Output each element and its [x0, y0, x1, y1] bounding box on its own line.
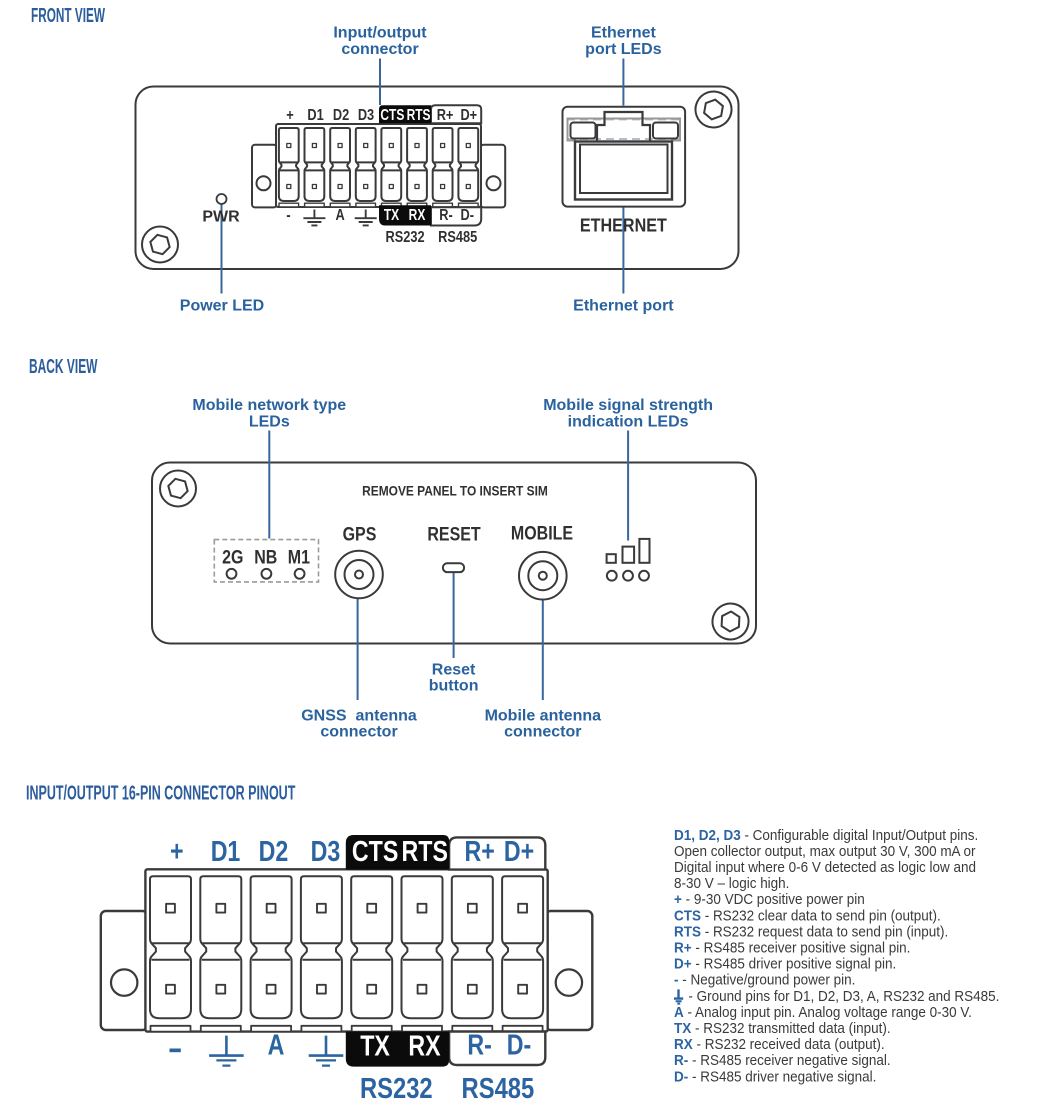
svg-text:R-: R-: [467, 1028, 491, 1061]
svg-text:+ - 9-30 VDC positive power pi: + - 9-30 VDC positive power pin: [674, 892, 865, 909]
svg-text:R+: R+: [464, 834, 494, 867]
svg-text:D+: D+: [460, 107, 477, 125]
svg-text:RS232: RS232: [360, 1072, 433, 1105]
svg-text:R- - RS485 receiver negative s: R- - RS485 receiver negative signal.: [674, 1053, 891, 1070]
svg-text:D2: D2: [259, 834, 289, 867]
svg-text:-: -: [286, 207, 290, 225]
svg-text:LEDs: LEDs: [249, 414, 290, 431]
svg-text:button: button: [429, 678, 479, 695]
svg-text:RX: RX: [409, 205, 426, 223]
svg-text:RTS: RTS: [402, 834, 448, 867]
svg-text:TX: TX: [384, 205, 400, 223]
svg-text:ETHERNET: ETHERNET: [580, 214, 667, 235]
svg-text:R+: R+: [437, 107, 454, 125]
svg-text:D- - RS485 driver negative sig: D- - RS485 driver negative signal.: [674, 1069, 876, 1086]
svg-text:NB: NB: [254, 546, 277, 568]
svg-text:A - Analog input pin. Analog v: A - Analog input pin. Analog voltage ran…: [674, 1004, 972, 1021]
svg-text:GPS: GPS: [343, 523, 377, 545]
svg-text:RX: RX: [408, 1029, 441, 1062]
svg-text:+: +: [286, 107, 293, 125]
svg-text:D-: D-: [461, 207, 475, 225]
svg-text:MOBILE: MOBILE: [511, 522, 573, 544]
svg-text:RS485: RS485: [462, 1072, 535, 1105]
svg-text:PWR: PWR: [202, 209, 240, 226]
svg-text:Reset: Reset: [432, 662, 476, 679]
svg-text:M1: M1: [288, 546, 310, 568]
svg-text:D2: D2: [333, 107, 349, 125]
svg-text:D+ - RS485 driver positive sig: D+ - RS485 driver positive signal pin.: [674, 956, 896, 973]
svg-text:CTS: CTS: [352, 834, 398, 867]
svg-text:D3: D3: [358, 107, 374, 125]
svg-text:D1: D1: [211, 834, 241, 867]
svg-text:Mobile antenna: Mobile antenna: [485, 707, 602, 724]
svg-text:R+ - RS485 receiver positive s: R+ - RS485 receiver positive signal pin.: [674, 940, 910, 957]
svg-text:GNSS antenna: GNSS antenna: [301, 707, 417, 724]
svg-text:connector: connector: [341, 41, 418, 58]
svg-text:Digital input where 0-6 V dete: Digital input where 0-6 V detected as lo…: [674, 859, 976, 876]
svg-text:CTS - RS232 clear data to send: CTS - RS232 clear data to send pin (outp…: [674, 908, 941, 925]
svg-text:8-30 V – logic high.: 8-30 V – logic high.: [674, 875, 789, 892]
svg-text:CTS: CTS: [380, 105, 404, 123]
svg-text:RS232: RS232: [385, 229, 424, 247]
svg-text:RX - RS232 received data (outp: RX - RS232 received data (output).: [674, 1036, 885, 1053]
svg-text:D+: D+: [504, 834, 534, 867]
svg-text:RESET: RESET: [427, 523, 480, 545]
svg-text:indication LEDs: indication LEDs: [568, 414, 689, 431]
svg-text:A: A: [335, 207, 345, 225]
svg-text:Input/output: Input/output: [333, 24, 427, 41]
svg-text:port LEDs: port LEDs: [585, 41, 662, 58]
svg-text:- - Negative/ground power pin.: - - Negative/ground power pin.: [674, 972, 855, 989]
svg-text:Mobile network type: Mobile network type: [192, 397, 346, 414]
svg-text:D1, D2, D3 - Configurable digi: D1, D2, D3 - Configurable digital Input/…: [674, 827, 978, 844]
svg-text:Ethernet port: Ethernet port: [573, 298, 674, 315]
svg-text:RTS - RS232 request data to se: RTS - RS232 request data to send pin (in…: [674, 924, 948, 941]
svg-text:REMOVE PANEL TO INSERT SIM: REMOVE PANEL TO INSERT SIM: [362, 482, 548, 498]
svg-text:FRONT VIEW: FRONT VIEW: [31, 5, 105, 27]
svg-text:RTS: RTS: [407, 105, 431, 123]
svg-text:A: A: [268, 1028, 285, 1061]
svg-text:+: +: [170, 834, 184, 867]
svg-text:D-: D-: [507, 1028, 531, 1061]
svg-text:TX: TX: [360, 1029, 390, 1062]
svg-text:INPUT/OUTPUT 16-PIN CONNECTOR: INPUT/OUTPUT 16-PIN CONNECTOR PINOUT: [26, 782, 295, 805]
svg-text:connector: connector: [504, 724, 581, 741]
svg-text:R-: R-: [439, 207, 453, 225]
svg-text:D1: D1: [307, 107, 323, 125]
svg-text:BACK VIEW: BACK VIEW: [29, 356, 98, 378]
svg-text:D3: D3: [311, 834, 341, 867]
svg-text:connector: connector: [320, 724, 397, 741]
svg-text:Mobile signal strength: Mobile signal strength: [543, 397, 713, 414]
svg-text:- Ground pins for D1, D2, D3,: - Ground pins for D1, D2, D3, A, RS232 a…: [688, 988, 999, 1005]
svg-text:TX - RS232 transmitted data (i: TX - RS232 transmitted data (input).: [674, 1020, 891, 1037]
svg-text:RS485: RS485: [438, 229, 477, 247]
svg-text:Ethernet: Ethernet: [591, 24, 657, 41]
svg-text:2G: 2G: [222, 546, 243, 568]
svg-text:Power LED: Power LED: [180, 298, 264, 315]
svg-text:Open collector output, max out: Open collector output, max output 30 V, …: [674, 843, 976, 860]
